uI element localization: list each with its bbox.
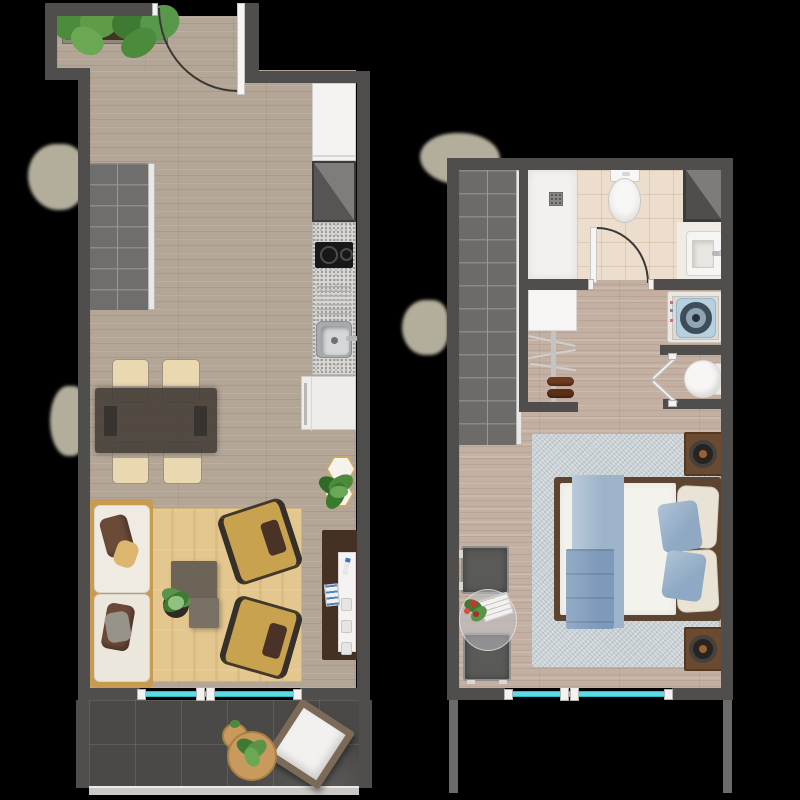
bedroom-chair bbox=[461, 546, 509, 594]
tv-button bbox=[341, 620, 352, 633]
corner-cabinet bbox=[312, 161, 356, 222]
wall bbox=[721, 158, 733, 700]
burner-large-icon bbox=[320, 246, 338, 264]
wall bbox=[521, 279, 593, 290]
table-lamp-icon bbox=[689, 440, 717, 468]
window-handle bbox=[206, 687, 215, 701]
sofa-pillow bbox=[104, 610, 133, 644]
washing-machine bbox=[667, 291, 722, 343]
wall bbox=[45, 3, 158, 16]
folded-blanket bbox=[566, 549, 614, 629]
staircase-handrail bbox=[148, 163, 155, 310]
round-seat bbox=[684, 360, 722, 398]
shower bbox=[528, 170, 577, 279]
fridge-door-seam bbox=[311, 377, 312, 431]
corner-cabinet-top bbox=[314, 163, 354, 220]
window-end-cap bbox=[137, 689, 146, 700]
tv-button bbox=[341, 642, 352, 655]
door-jamb bbox=[668, 353, 677, 360]
shrub bbox=[402, 300, 448, 355]
sink-drain-icon bbox=[331, 337, 338, 344]
staircase bbox=[88, 163, 148, 310]
void-side-wall bbox=[723, 700, 732, 793]
wall bbox=[245, 71, 370, 83]
window-handle bbox=[196, 687, 205, 701]
table-lamp-icon bbox=[689, 635, 717, 663]
washer-control-fleck bbox=[670, 301, 673, 304]
sliding-window-glass bbox=[507, 691, 672, 697]
window-handle bbox=[560, 687, 569, 701]
wall bbox=[519, 402, 578, 412]
kitchen-tall-cabinet bbox=[312, 83, 356, 161]
void-side-wall bbox=[449, 700, 458, 793]
closet-panel bbox=[528, 289, 577, 331]
bathroom-door-leaf bbox=[590, 227, 597, 283]
door-jamb bbox=[588, 279, 594, 290]
entry-door-leaf bbox=[237, 3, 245, 95]
kitchen-cabinet-seam bbox=[313, 155, 355, 157]
washer-drum-center bbox=[692, 314, 700, 322]
shoes bbox=[547, 377, 574, 386]
table-runner bbox=[194, 406, 207, 436]
magazines bbox=[324, 583, 340, 606]
fridge-handle-icon bbox=[304, 383, 307, 425]
washer-control-fleck bbox=[670, 309, 673, 312]
window-end-cap bbox=[504, 689, 513, 700]
pillow-blue bbox=[657, 499, 703, 553]
window-handle bbox=[570, 687, 579, 701]
sliding-window-glass bbox=[140, 691, 300, 697]
wall bbox=[300, 688, 370, 700]
cooktop bbox=[315, 242, 353, 268]
pillow-blue bbox=[661, 549, 707, 602]
wall bbox=[447, 158, 459, 700]
refrigerator bbox=[301, 376, 356, 430]
tv-button bbox=[341, 598, 352, 611]
lower-floor-plan bbox=[0, 0, 400, 800]
wall bbox=[447, 158, 733, 170]
toilet-bowl bbox=[608, 178, 641, 223]
washer-control-fleck bbox=[670, 319, 673, 322]
door-jamb bbox=[152, 3, 158, 16]
staircase-divider bbox=[117, 163, 118, 310]
balcony-side-wall bbox=[76, 700, 89, 788]
basin-bowl bbox=[692, 240, 714, 268]
balcony-side-wall bbox=[359, 700, 372, 788]
wall bbox=[357, 71, 370, 700]
table-runner bbox=[104, 406, 117, 436]
wall bbox=[78, 68, 90, 700]
burner-small-icon bbox=[340, 248, 353, 261]
corner-wardrobe bbox=[683, 167, 724, 222]
wall bbox=[650, 279, 733, 290]
coffee-table bbox=[189, 598, 219, 628]
wall bbox=[672, 688, 733, 700]
upper-floor-plan bbox=[400, 0, 800, 800]
wall bbox=[519, 158, 528, 412]
staircase-divider bbox=[487, 170, 488, 445]
shower-drain-icon bbox=[549, 192, 563, 206]
floor-plan-canvas: { "meta": { "type": "architectural floor… bbox=[0, 0, 800, 800]
drainboard bbox=[317, 286, 351, 316]
window-end-cap bbox=[293, 689, 302, 700]
shoes bbox=[547, 389, 574, 398]
door-jamb bbox=[648, 279, 654, 290]
door-jamb bbox=[668, 400, 677, 407]
wall bbox=[78, 688, 140, 700]
wall bbox=[447, 688, 505, 700]
window-end-cap bbox=[664, 689, 673, 700]
